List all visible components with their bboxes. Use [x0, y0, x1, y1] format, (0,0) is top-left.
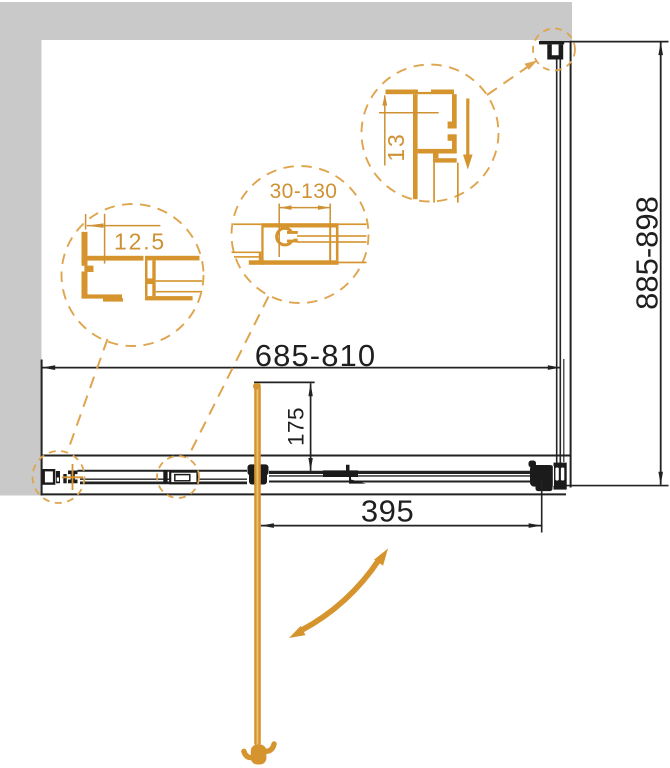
- svg-text:395: 395: [361, 493, 415, 528]
- svg-text:30-130: 30-130: [270, 180, 338, 203]
- svg-text:685-810: 685-810: [255, 338, 376, 373]
- svg-text:13: 13: [383, 132, 409, 161]
- svg-text:12.5: 12.5: [114, 229, 166, 255]
- svg-text:885-898: 885-898: [630, 196, 665, 310]
- svg-text:175: 175: [284, 407, 309, 446]
